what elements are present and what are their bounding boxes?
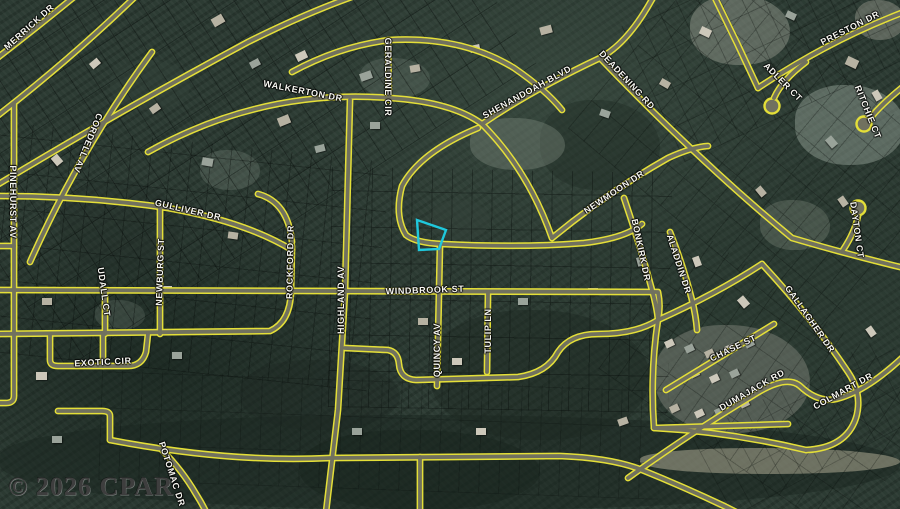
street-label: PINEHURST AV bbox=[8, 165, 18, 238]
street-label: TULIP LN bbox=[483, 308, 493, 353]
street-label: ROCKFORD DR bbox=[284, 225, 295, 299]
highlighted-parcel-layer bbox=[0, 0, 900, 509]
street-label: HIGHLAND AV bbox=[336, 266, 346, 334]
street-label: GERALDINE CIR bbox=[383, 38, 393, 117]
copyright-watermark: © 2026 CPAR bbox=[8, 472, 174, 502]
highlighted-parcel[interactable] bbox=[417, 220, 446, 250]
satellite-map[interactable]: MERRICK DRWALKERTON DRGERALDINE CIRSHENA… bbox=[0, 0, 900, 509]
street-label: QUINCY AV bbox=[432, 323, 442, 377]
